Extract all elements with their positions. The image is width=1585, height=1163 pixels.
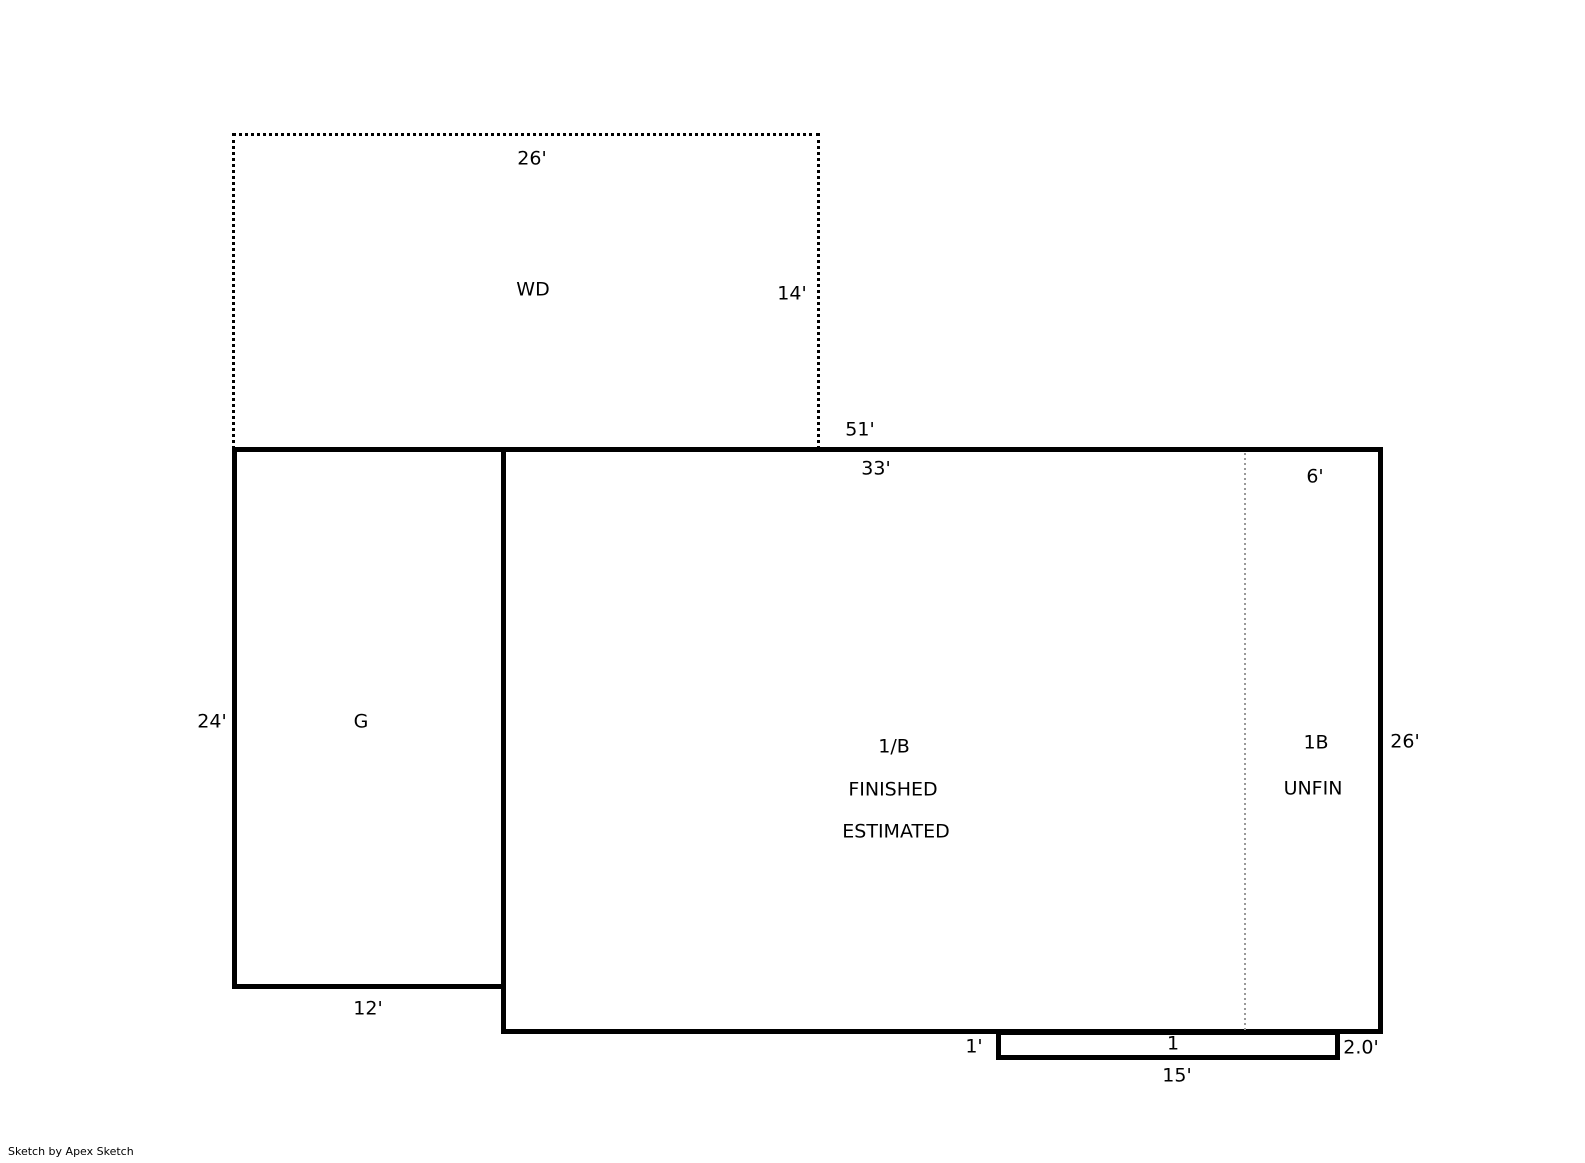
bump-bottom-dimension: 15' xyxy=(1162,1067,1191,1086)
overall-top-dimension: 51' xyxy=(845,421,874,440)
unfinished-area-label-line1: 1B xyxy=(1303,734,1328,753)
floorplan-canvas: 26' WD 14' 24' G 12' 51' 33' 6' 26' 1/B … xyxy=(0,0,1585,1163)
wd-right-dimension: 14' xyxy=(777,285,806,304)
wd-top-dimension: 26' xyxy=(517,150,546,169)
finished-area-label-line2: FINISHED xyxy=(848,781,937,800)
apex-sketch-watermark: Sketch by Apex Sketch xyxy=(8,1145,134,1158)
finished-unfinished-partition-line xyxy=(1244,453,1246,1030)
garage-outline xyxy=(232,447,506,989)
main-right-dimension: 26' xyxy=(1390,733,1419,752)
unfinished-area-label-line2: UNFIN xyxy=(1284,780,1343,799)
finished-area-label-line1: 1/B xyxy=(878,738,910,757)
unfinished-top-dimension: 6' xyxy=(1306,468,1323,487)
garage-left-dimension: 24' xyxy=(197,713,226,732)
bump-left-dimension: 1' xyxy=(965,1038,982,1057)
bump-right-dimension: 2.0' xyxy=(1343,1039,1378,1058)
finished-top-dimension: 33' xyxy=(861,460,890,479)
finished-area-label-line3: ESTIMATED xyxy=(842,823,949,842)
wd-area-label: WD xyxy=(516,281,549,300)
garage-bottom-dimension: 12' xyxy=(353,1000,382,1019)
main-level-outline xyxy=(501,447,1383,1034)
bump-top-dimension: 1 xyxy=(1167,1035,1179,1054)
garage-area-label: G xyxy=(354,713,369,732)
